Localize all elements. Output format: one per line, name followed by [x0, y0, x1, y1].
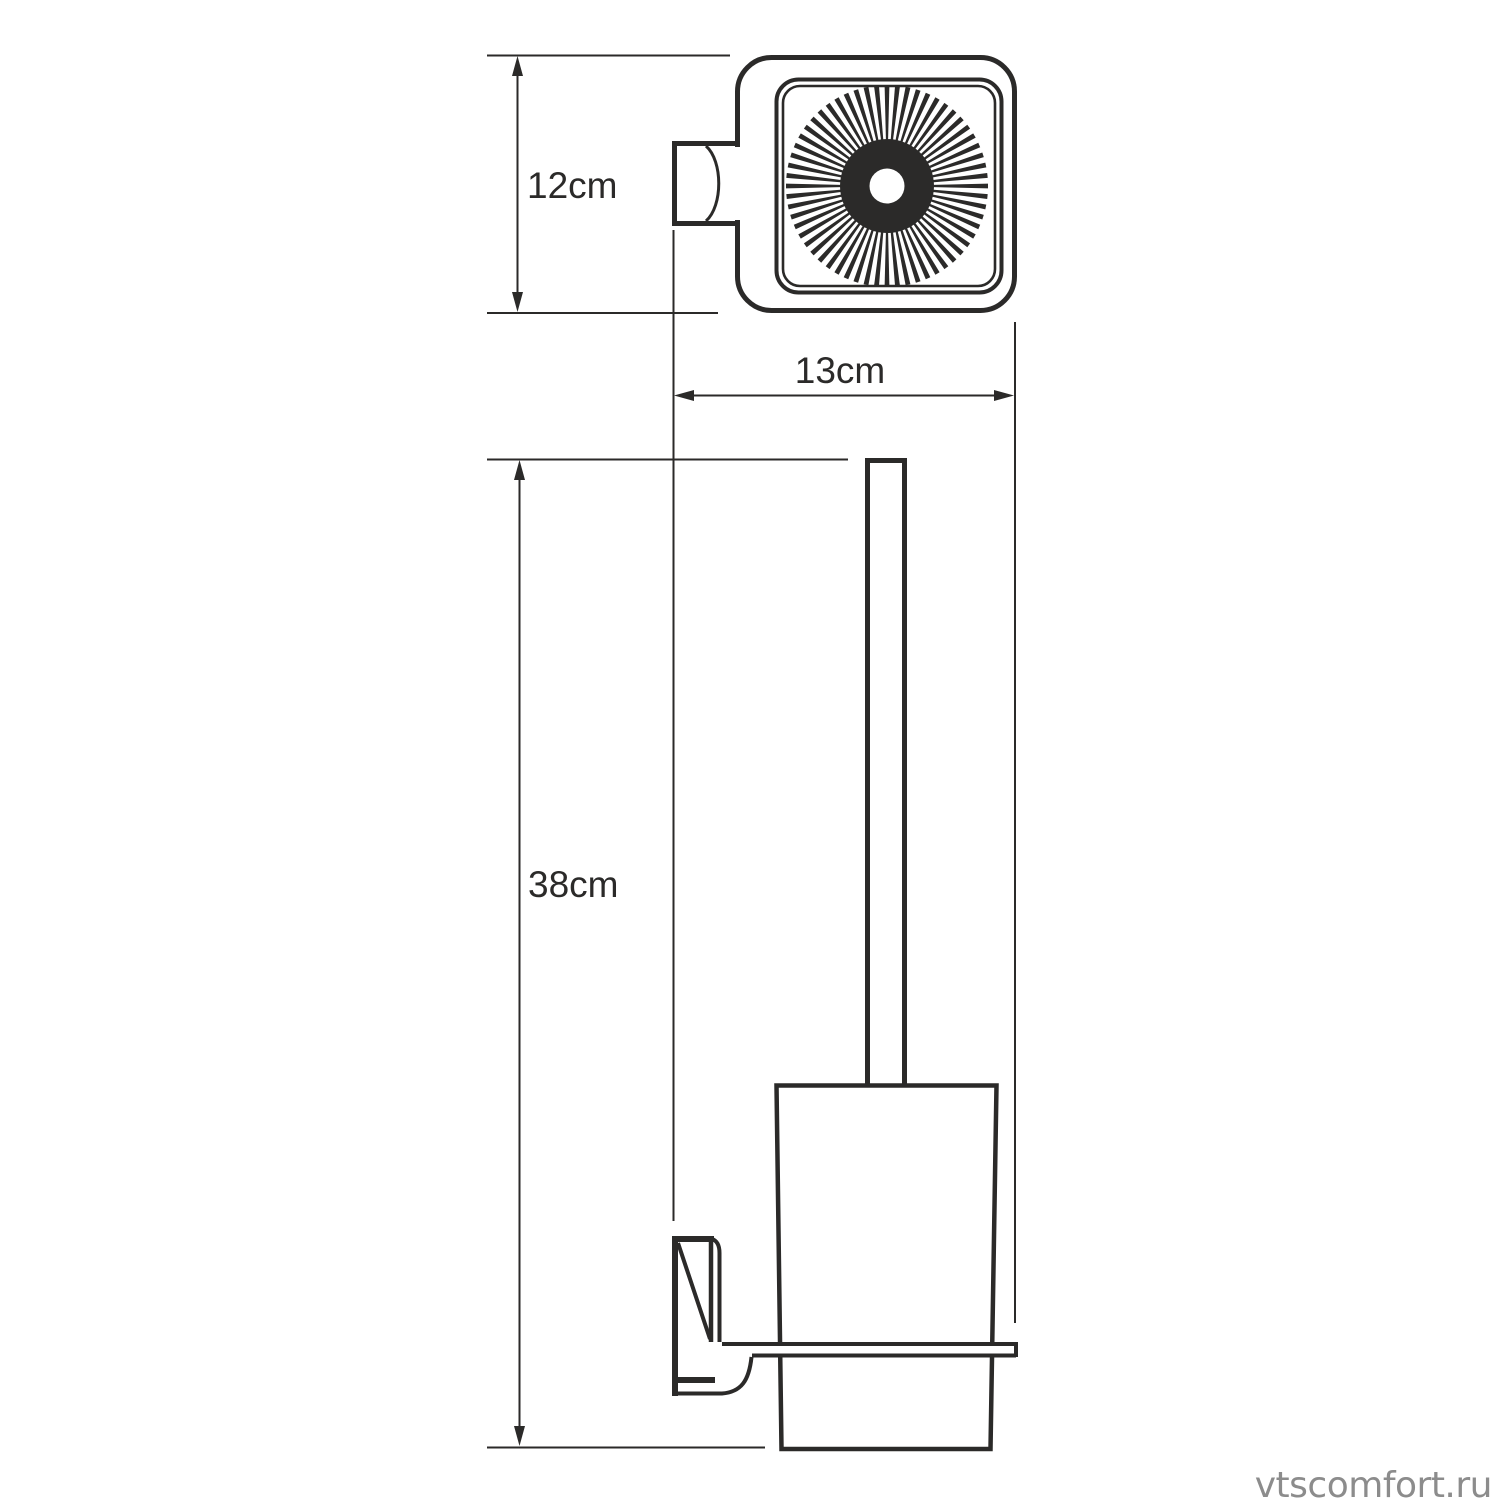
dim-label-12cm: 12cm	[527, 165, 617, 206]
arrowhead-left-icon	[674, 390, 694, 401]
arrowhead-right-icon	[994, 390, 1014, 401]
toilet-brush-holder-drawing: 12cm 13cm 38cm	[0, 0, 1503, 1504]
dim-label-38cm: 38cm	[528, 864, 618, 905]
front-view	[672, 461, 1016, 1450]
brush-cup	[777, 1086, 997, 1450]
arrowhead-up-icon	[514, 460, 525, 480]
brush-handle	[868, 461, 905, 1087]
technical-drawing-page: 12cm 13cm 38cm	[0, 0, 1503, 1504]
dim-label-13cm: 13cm	[795, 350, 885, 391]
bracket-opening	[729, 147, 744, 220]
bracket-curve	[706, 146, 719, 221]
top-view	[672, 58, 1015, 311]
mounting-rail	[713, 1342, 1016, 1357]
brush-center-hole	[870, 169, 905, 204]
dimension-12cm-group: 12cm	[487, 56, 730, 314]
bracket-fill	[672, 1236, 722, 1396]
watermark-text: vtscomfort.ru	[1255, 1465, 1492, 1504]
arrowhead-down-icon	[514, 1426, 525, 1446]
arrowhead-down-icon	[512, 292, 523, 312]
arrowhead-up-icon	[512, 56, 523, 76]
wall-bracket-front-view	[672, 1236, 752, 1396]
